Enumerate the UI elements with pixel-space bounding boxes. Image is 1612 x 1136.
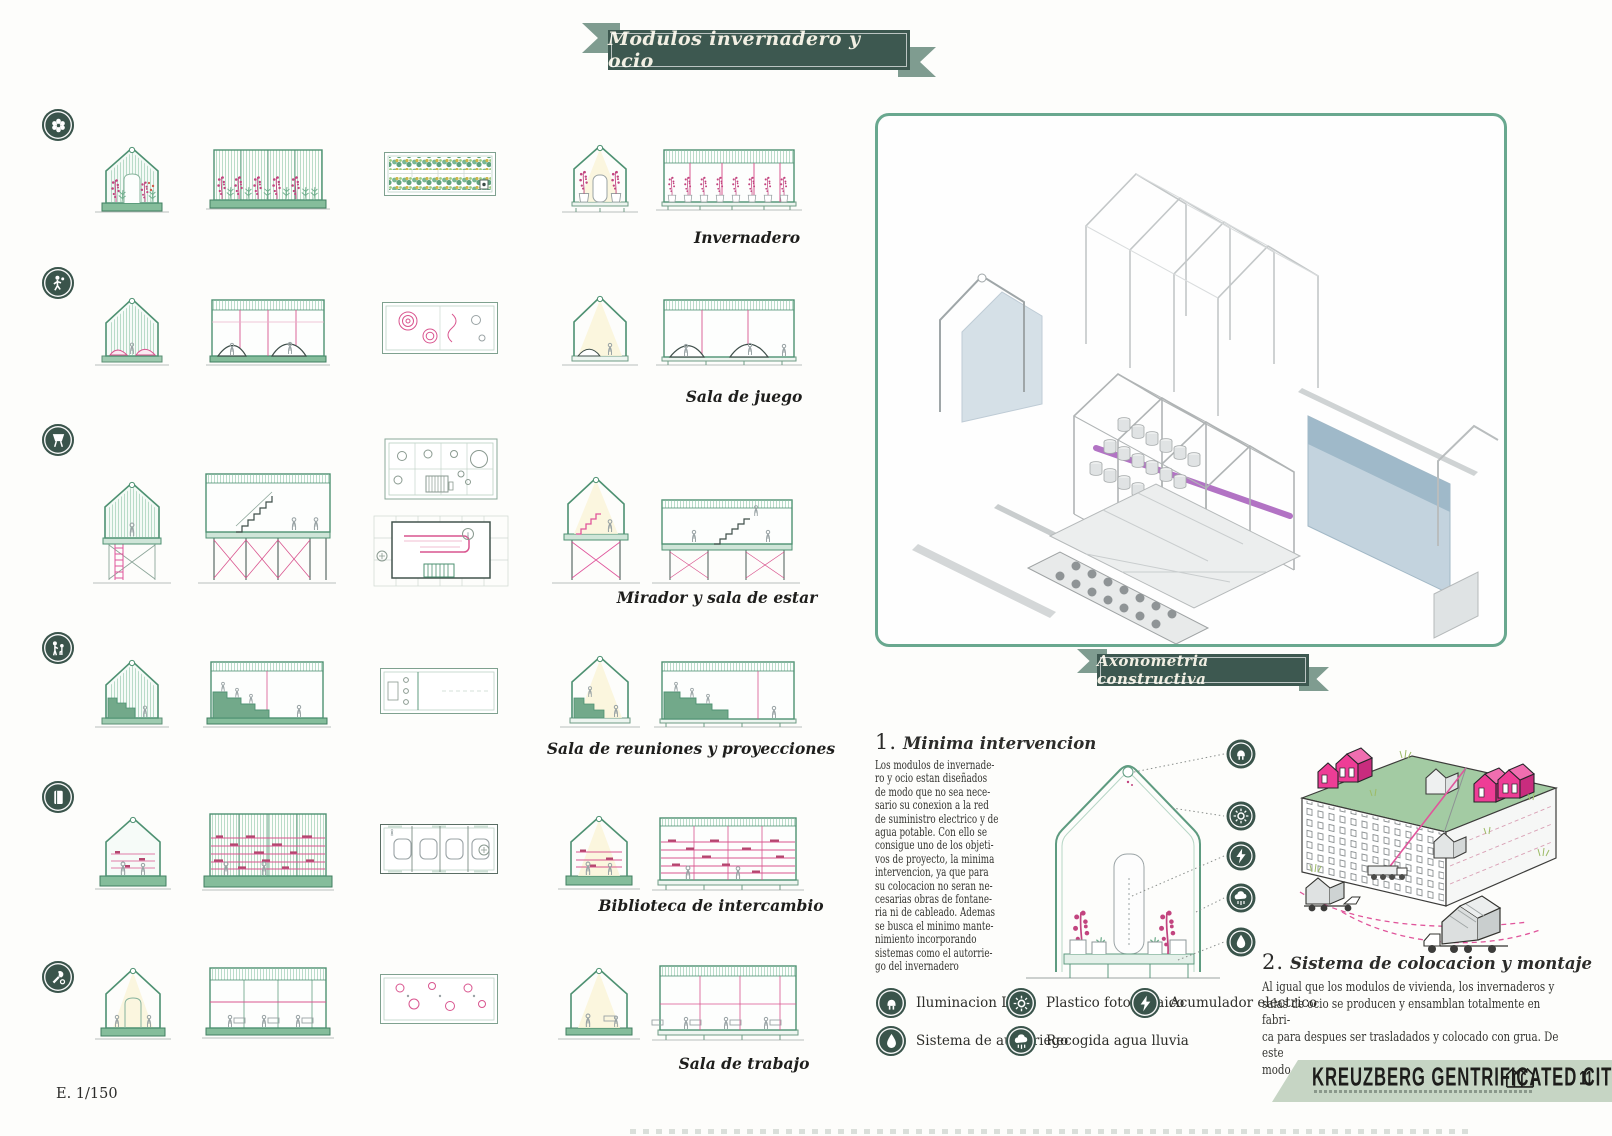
module-label-reuniones: Sala de reuniones y proyecciones [547, 739, 835, 758]
page-edge-artifact [630, 1129, 1470, 1134]
trabajo-end-section [95, 956, 171, 1044]
brand-banner: KREUZBERG GENTRIFICATED CITY 11 [1272, 1060, 1612, 1102]
mirador-cross-section [552, 450, 640, 588]
mirador-long-elevation [198, 452, 336, 588]
page-number: 11 [1579, 1067, 1592, 1089]
invernadero-cross-section [562, 138, 638, 216]
section1-body: Los modulos de invernade- ro y ocio esta… [875, 758, 1012, 973]
greenhouse-systems-diagram [1022, 728, 1262, 986]
montaje-illustration [1284, 736, 1570, 962]
module-label-mirador: Mirador y sala de estar [617, 588, 818, 607]
legend-label-fotovoltaico: Plastico fotovoltaico [1046, 995, 1184, 1011]
water-drop-icon [1227, 928, 1256, 957]
trabajo-plan [378, 972, 500, 1026]
reuniones-end-section [95, 650, 169, 732]
section1-number: 1. [875, 730, 897, 754]
reuniones-long-elevation [203, 652, 331, 732]
rain-cloud-icon [1006, 1026, 1036, 1056]
juego-long-elevation [206, 292, 330, 370]
juego-long-section [656, 292, 802, 370]
brand-logo-houses [1504, 1066, 1536, 1089]
axo-title: Axonometria constructiva [1097, 654, 1309, 686]
biblioteca-plan [378, 822, 500, 876]
section2-number: 2. [1262, 950, 1284, 974]
trabajo-long-section [652, 958, 804, 1044]
invernadero-plan [382, 150, 498, 198]
biblioteca-cross-section [558, 804, 640, 894]
mirador-long-section [652, 486, 800, 588]
biblioteca-long-section [652, 810, 804, 894]
reuniones-plan [378, 666, 500, 716]
module-label-juego: Sala de juego [686, 387, 803, 406]
trabajo-long-elevation [202, 960, 334, 1042]
juego-cross-section [562, 288, 638, 370]
invernadero-long-section [656, 142, 802, 214]
lookout-icon [42, 424, 74, 456]
rain-cloud-icon [1227, 884, 1256, 913]
axonometric-drawing [878, 116, 1504, 644]
biblioteca-end-section [95, 806, 171, 894]
axonometric-panel [875, 113, 1507, 647]
invernadero-end-section [95, 140, 169, 216]
juego-plan [380, 300, 500, 356]
mirador-end-elevation [93, 452, 171, 588]
reuniones-cross-section [560, 646, 640, 732]
scale-note: E. 1/150 [56, 1086, 118, 1102]
sun-icon [1227, 802, 1256, 831]
reuniones-long-section [654, 652, 802, 732]
invernadero-long-elevation [206, 142, 330, 214]
section2-title: Sistema de colocacion y montaje [1290, 954, 1592, 973]
module-label-biblioteca: Biblioteca de intercambio [598, 896, 823, 915]
brand-subtitle-microtext [1314, 1090, 1532, 1093]
module-label-trabajo: Sala de trabajo [679, 1054, 810, 1073]
lightning-icon [1227, 842, 1256, 871]
led-icon [876, 988, 906, 1018]
flower-icon [42, 109, 74, 141]
tools-icon [42, 961, 74, 993]
sun-icon [1006, 988, 1036, 1018]
mirador-lower-plan [372, 512, 510, 590]
playing-person-icon [42, 267, 74, 299]
title-banner: Modulos invernadero y ocio [608, 30, 910, 70]
legend-label-lluvia: Recogida agua lluvia [1046, 1033, 1189, 1049]
section2-heading: 2.Sistema de colocacion y montaje [1262, 950, 1592, 974]
meeting-people-icon [42, 632, 74, 664]
page-title: Modulos invernadero y ocio [608, 30, 910, 70]
book-icon [42, 781, 74, 813]
water-drop-icon [876, 1026, 906, 1056]
trabajo-cross-section [558, 954, 640, 1044]
biblioteca-long-elevation [202, 808, 334, 894]
lightning-icon [1130, 988, 1160, 1018]
mirador-upper-plan [382, 436, 500, 502]
led-icon [1227, 740, 1256, 769]
juego-end-section [95, 290, 169, 370]
axo-banner: Axonometria constructiva [1097, 654, 1309, 686]
module-label-invernadero: Invernadero [694, 228, 800, 247]
